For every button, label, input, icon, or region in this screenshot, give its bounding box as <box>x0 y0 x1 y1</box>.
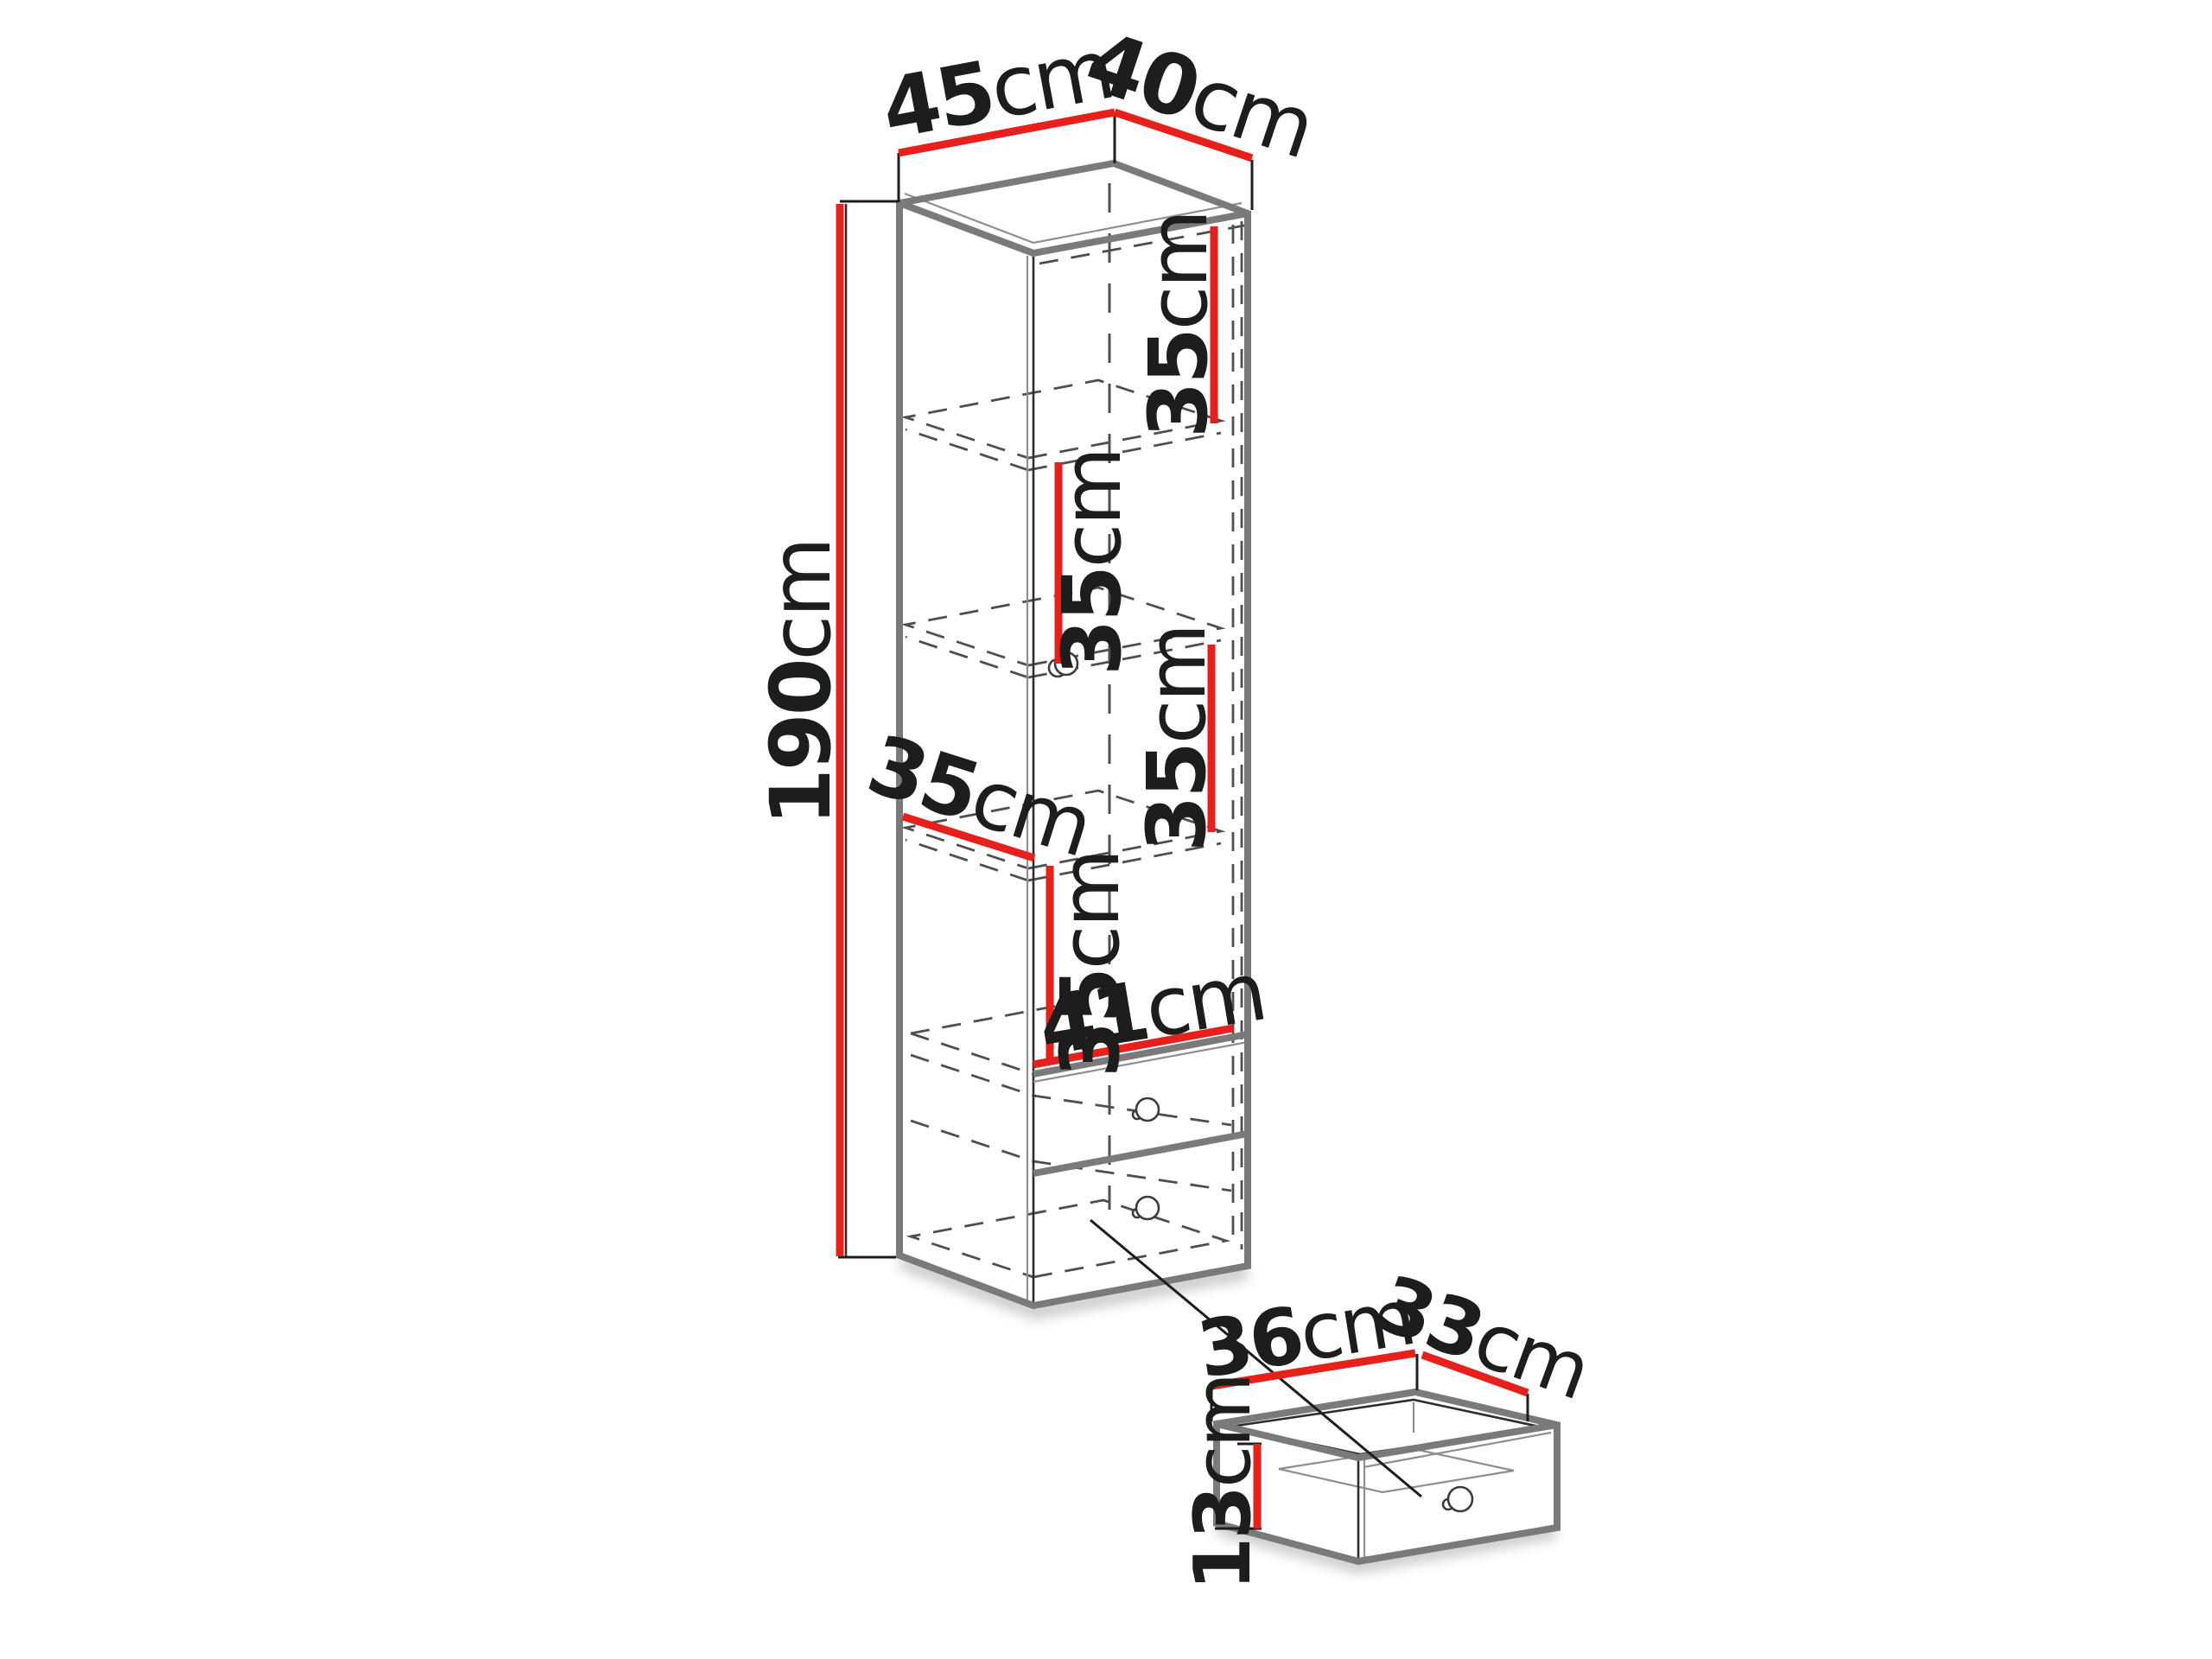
cabinet-height-label: 190cm <box>753 539 849 826</box>
cabinet-depth-label: 40cm <box>1075 12 1325 177</box>
drawer-2-knob-icon <box>1136 1197 1159 1219</box>
diagram-canvas: 45cm 40cm 190cm 35cm 35cm 35cm 35cm 35cm… <box>0 0 2212 1659</box>
detail-drawer-knob-icon <box>1448 1487 1472 1511</box>
compartment-1-height-label: 35cm <box>1132 212 1226 438</box>
drawer-1-knob-icon <box>1136 1098 1159 1121</box>
compartment-2-height-label: 35cm <box>1046 449 1140 676</box>
dimension-labels: 45cm 40cm 190cm 35cm 35cm 35cm 35cm 35cm… <box>753 12 1600 1591</box>
furniture-dimension-diagram: 45cm 40cm 190cm 35cm 35cm 35cm 35cm 35cm… <box>0 0 2212 1659</box>
compartment-3-height-label: 35cm <box>1130 626 1224 852</box>
drawer-height-label: 13cm <box>1178 1375 1268 1591</box>
